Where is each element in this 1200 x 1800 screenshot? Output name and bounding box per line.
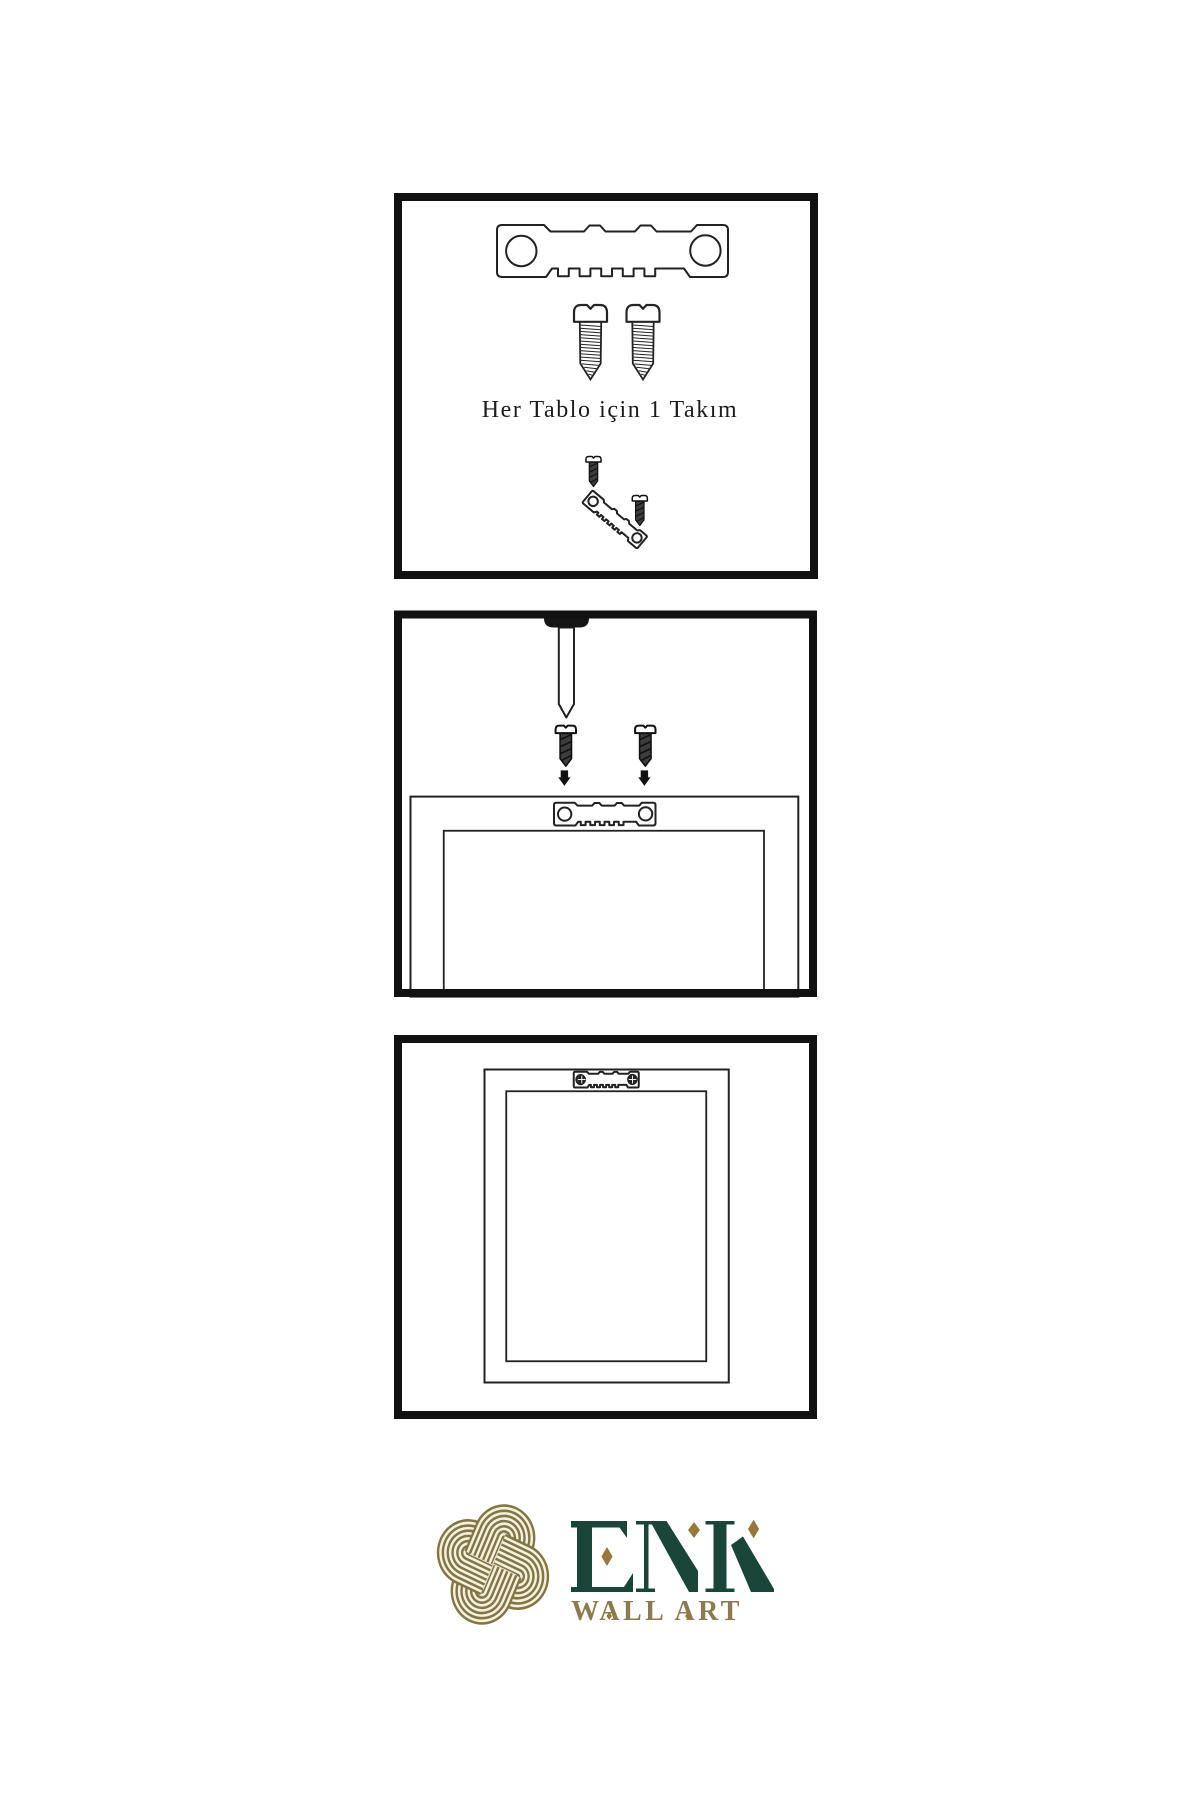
svg-text:WALL ART: WALL ART (571, 1596, 743, 1627)
svg-text:Her Tablo için 1 Takım: Her Tablo için 1 Takım (482, 397, 738, 423)
